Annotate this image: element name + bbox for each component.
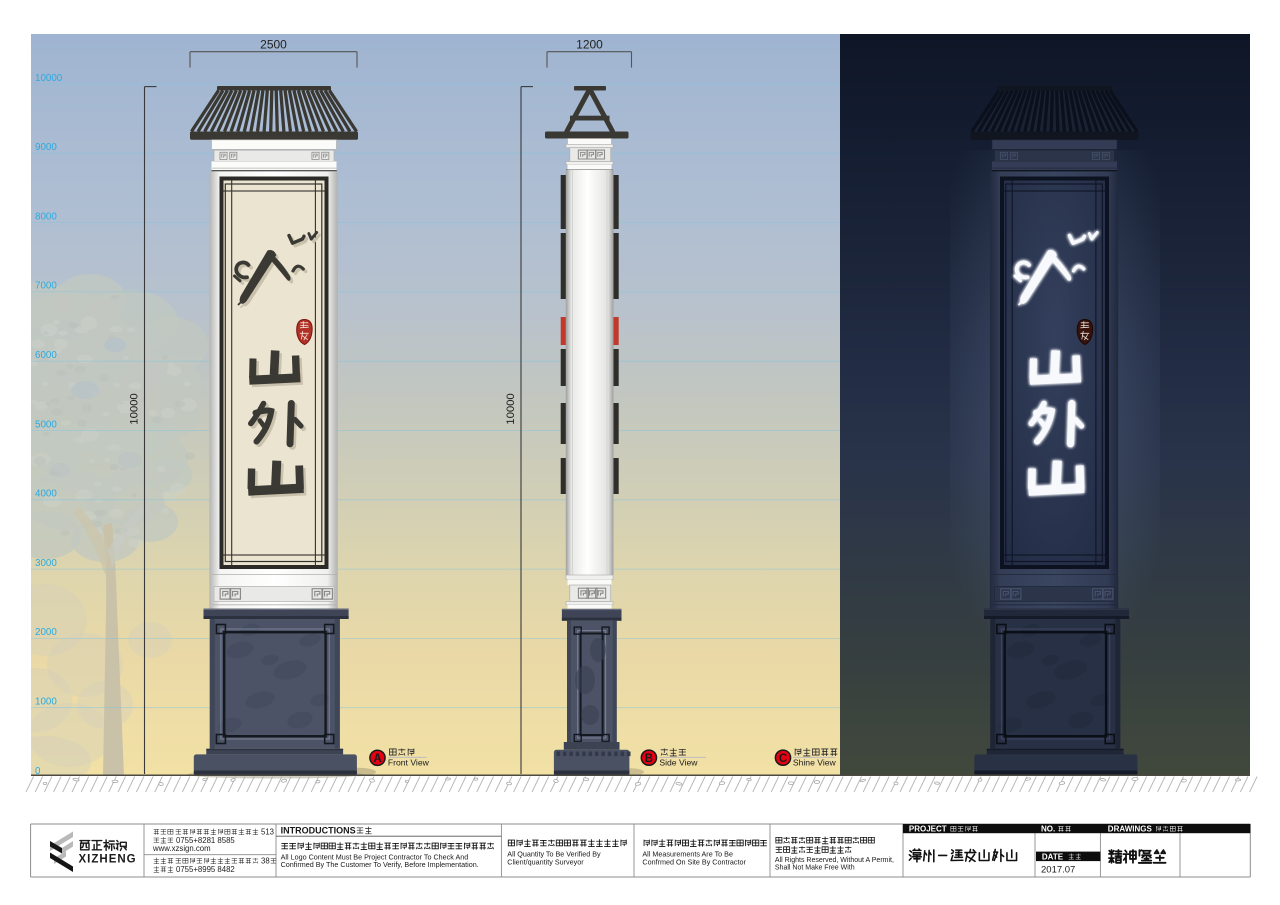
svg-text:9000: 9000 <box>35 142 57 153</box>
svg-text:7000: 7000 <box>35 281 57 292</box>
svg-text:XIZHENG: XIZHENG <box>79 853 137 865</box>
svg-text:DRAWINGS: DRAWINGS <box>1108 825 1153 834</box>
svg-text:DATE: DATE <box>1042 852 1064 861</box>
svg-text:2017.07: 2017.07 <box>1041 864 1075 875</box>
svg-text:C: C <box>779 753 787 765</box>
svg-text:5000: 5000 <box>35 419 57 430</box>
svg-text:Front View: Front View <box>388 757 430 767</box>
svg-text:38: 38 <box>261 857 270 866</box>
svg-text:NO.: NO. <box>1041 825 1055 834</box>
svg-text:Shine View: Shine View <box>793 757 837 767</box>
svg-text:1200: 1200 <box>576 38 603 52</box>
svg-text:1000: 1000 <box>35 697 57 708</box>
svg-text:10000: 10000 <box>35 73 63 84</box>
svg-text:6000: 6000 <box>35 350 57 361</box>
svg-text:Confrmed On Site By Contractor: Confrmed On Site By Contractor <box>642 857 746 866</box>
svg-text:4000: 4000 <box>35 489 57 500</box>
svg-text:Side View: Side View <box>659 757 698 767</box>
svg-text:All Rights Reserved, Without A: All Rights Reserved, Without A Permit, <box>775 857 894 864</box>
svg-text:Client/quantity Surveyor: Client/quantity Surveyor <box>507 857 584 866</box>
svg-text:0755+8995 8482: 0755+8995 8482 <box>176 865 235 874</box>
svg-text:2500: 2500 <box>260 38 287 52</box>
svg-text:513: 513 <box>261 828 274 837</box>
svg-text:Shall Not Make Free With: Shall Not Make Free With <box>775 864 855 871</box>
svg-text:INTRODUCTIONS: INTRODUCTIONS <box>281 825 356 835</box>
svg-text:A: A <box>373 753 381 765</box>
svg-text:2000: 2000 <box>35 627 57 638</box>
svg-text:PROJECT: PROJECT <box>909 825 947 834</box>
svg-text:10000: 10000 <box>129 393 141 424</box>
svg-text:www.xzsign.com: www.xzsign.com <box>152 844 211 853</box>
svg-text:B: B <box>645 753 653 765</box>
svg-text:3000: 3000 <box>35 558 57 569</box>
svg-text:10000: 10000 <box>505 393 517 424</box>
svg-text:Confirmed By The Customer To V: Confirmed By The Customer To Verify, Bef… <box>281 860 479 869</box>
svg-text:8000: 8000 <box>35 211 57 222</box>
